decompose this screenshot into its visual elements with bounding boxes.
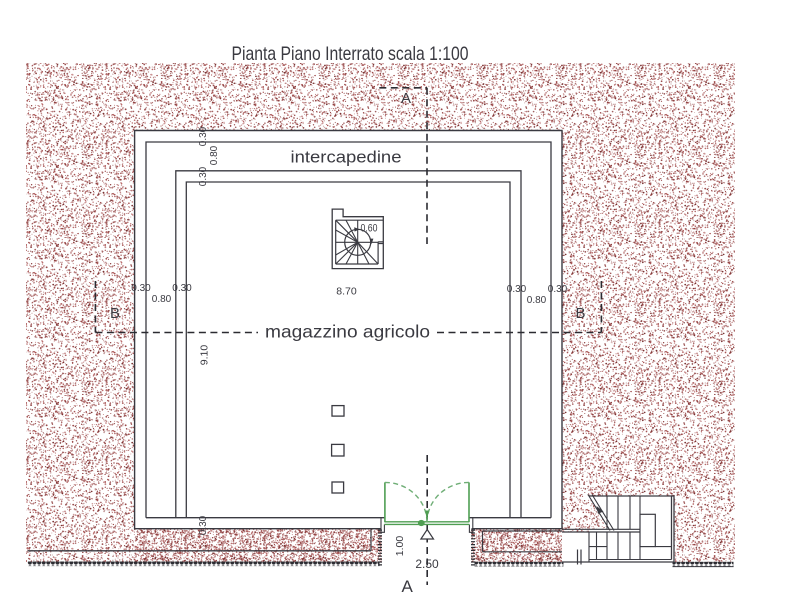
svg-text:0.80: 0.80 bbox=[527, 295, 547, 306]
svg-text:0.30: 0.30 bbox=[131, 283, 151, 294]
svg-text:A: A bbox=[402, 577, 414, 596]
svg-text:0.30: 0.30 bbox=[198, 166, 209, 186]
svg-text:B: B bbox=[110, 305, 120, 322]
svg-text:0.30: 0.30 bbox=[198, 515, 209, 535]
svg-text:0.30: 0.30 bbox=[548, 284, 568, 295]
svg-text:A: A bbox=[401, 90, 411, 107]
svg-text:0.30: 0.30 bbox=[507, 284, 527, 295]
svg-text:0.60: 0.60 bbox=[361, 223, 378, 235]
svg-text:0.80: 0.80 bbox=[152, 294, 172, 305]
svg-text:8.70: 8.70 bbox=[336, 286, 357, 298]
svg-text:magazzino agricolo: magazzino agricolo bbox=[265, 322, 430, 342]
svg-text:0.80: 0.80 bbox=[209, 145, 220, 165]
svg-text:2.50: 2.50 bbox=[415, 557, 439, 571]
svg-text:Pianta Piano Interrato scala 1: Pianta Piano Interrato scala 1:100 bbox=[232, 43, 469, 65]
svg-text:B: B bbox=[576, 305, 586, 322]
svg-text:0.30: 0.30 bbox=[172, 283, 192, 294]
svg-text:0.30: 0.30 bbox=[198, 126, 209, 146]
svg-text:1.00: 1.00 bbox=[394, 536, 406, 557]
svg-text:intercapedine: intercapedine bbox=[291, 148, 402, 167]
svg-text:9.10: 9.10 bbox=[199, 345, 211, 366]
